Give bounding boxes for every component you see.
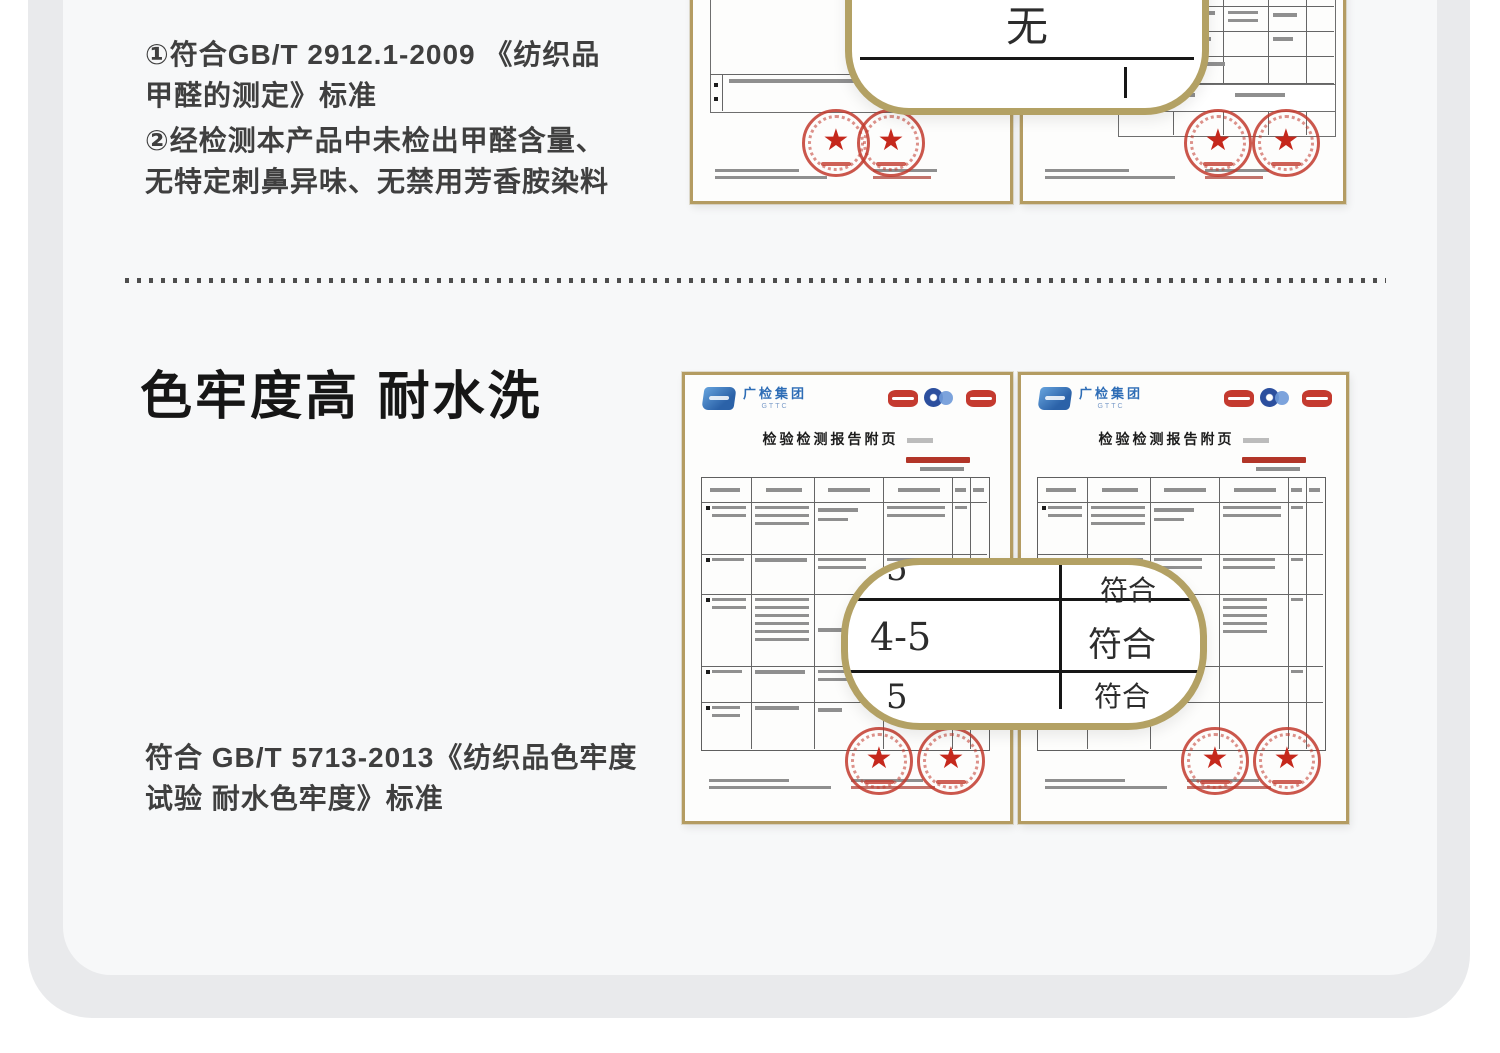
text-placeholder [714, 97, 718, 101]
approval-stamp-icon: ★ [857, 109, 925, 177]
text-placeholder [1273, 37, 1293, 41]
colorfastness-result-callout: 5 符合 4-5 符合 5 符合 [841, 558, 1207, 730]
text-placeholder [715, 169, 799, 172]
approval-stamp-icon: ★ [1252, 109, 1320, 177]
accreditation-marks [1224, 388, 1332, 408]
text-placeholder [715, 176, 827, 179]
text-placeholder [709, 779, 789, 782]
cnas-mark-icon [924, 388, 960, 408]
formaldehyde-result-callout: 无 [845, 0, 1209, 115]
colorfastness-heading: 色牢度高 耐水洗 [140, 368, 542, 426]
cnas-mark-icon [1260, 388, 1296, 408]
verdict-value: 符合 [1100, 569, 1156, 609]
title-suffix-placeholder [1243, 438, 1269, 443]
report-number-placeholder [906, 457, 970, 463]
brand-subtitle: GTTC [1079, 403, 1143, 410]
cma-mark-icon [888, 390, 918, 407]
approval-stamp-icon: ★ [1184, 109, 1252, 177]
brand-logo: 广检集团 GTTC [1039, 387, 1143, 410]
table-line [848, 670, 1200, 673]
approval-stamp-icon: ★ [1181, 727, 1249, 795]
verdict-value: 符合 [1094, 675, 1150, 715]
callout-value: 无 [852, 0, 1202, 54]
cma-mark-icon [1224, 390, 1254, 407]
cma-mark-icon [966, 390, 996, 407]
text-placeholder [1235, 93, 1285, 97]
colorfastness-standard-text: 符合 GB/T 5713-2013《纺织品色牢度 试验 耐水色牢度》标准 [145, 737, 637, 819]
text-placeholder [1045, 786, 1167, 789]
dashed-divider [125, 278, 1386, 283]
grade-value: 4-5 [870, 615, 931, 659]
report-title: 检验检测报告附页 [685, 429, 1010, 449]
approval-stamp-icon: ★ [917, 727, 985, 795]
report-title-text: 检验检测报告附页 [1099, 431, 1235, 447]
text-line: ②经检测本产品中未检出甲醛含量、 [145, 120, 609, 161]
accreditation-marks [888, 388, 996, 408]
title-suffix-placeholder [907, 438, 933, 443]
grade-value: 5 [886, 677, 908, 717]
report-number-sub-placeholder [1256, 467, 1300, 471]
text-placeholder [1273, 13, 1297, 17]
brand-subtitle: GTTC [743, 403, 807, 410]
grade-value: 5 [886, 565, 908, 589]
text-placeholder [1045, 779, 1125, 782]
brand-logo: 广检集团 GTTC [703, 387, 807, 410]
text-line: 甲醛的测定》标准 [145, 75, 600, 116]
report-number-sub-placeholder [920, 467, 964, 471]
text-line: 符合 GB/T 5713-2013《纺织品色牢度 [145, 737, 637, 778]
report-title: 检验检测报告附页 [1021, 429, 1346, 449]
text-placeholder [1228, 11, 1258, 25]
approval-stamp-icon: ★ [845, 727, 913, 795]
text-placeholder [714, 83, 718, 87]
cma-mark-icon [1302, 390, 1332, 407]
table-line [1059, 565, 1062, 709]
gttc-logo-icon [1037, 387, 1072, 410]
text-line: 试验 耐水色牢度》标准 [145, 778, 637, 819]
verdict-value: 符合 [1088, 617, 1156, 666]
formaldehyde-result-text: ②经检测本产品中未检出甲醛含量、 无特定刺鼻异味、无禁用芳香胺染料 [145, 120, 609, 202]
text-placeholder [1045, 176, 1175, 179]
product-quality-detail-page: ①符合GB/T 2912.1-2009 《纺织品 甲醛的测定》标准 ②经检测本产… [0, 0, 1500, 1053]
table-line [1124, 67, 1127, 98]
brand-name: 广检集团 [743, 387, 807, 401]
text-line: 无特定刺鼻异味、无禁用芳香胺染料 [145, 161, 609, 202]
table-line [722, 74, 723, 111]
text-placeholder [1045, 169, 1129, 172]
gttc-logo-icon [701, 387, 736, 410]
text-line: ①符合GB/T 2912.1-2009 《纺织品 [145, 34, 600, 75]
approval-stamp-icon: ★ [1253, 727, 1321, 795]
callout-content: 5 符合 4-5 符合 5 符合 [848, 565, 1200, 723]
text-placeholder [709, 786, 831, 789]
table-line [860, 57, 1194, 60]
text-placeholder [873, 176, 931, 179]
brand-name: 广检集团 [1079, 387, 1143, 401]
report-number-placeholder [1242, 457, 1306, 463]
formaldehyde-standard-text: ①符合GB/T 2912.1-2009 《纺织品 甲醛的测定》标准 [145, 34, 600, 116]
report-title-text: 检验检测报告附页 [763, 431, 899, 447]
